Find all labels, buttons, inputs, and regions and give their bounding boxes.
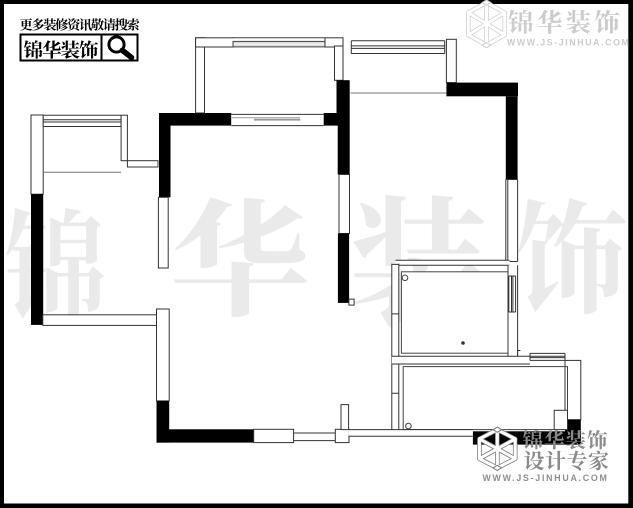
svg-text:WWW.JS-JINHUA.COM: WWW.JS-JINHUA.COM [483, 473, 609, 483]
svg-text:WWW.JS-JINHUA.COM: WWW.JS-JINHUA.COM [507, 38, 630, 48]
